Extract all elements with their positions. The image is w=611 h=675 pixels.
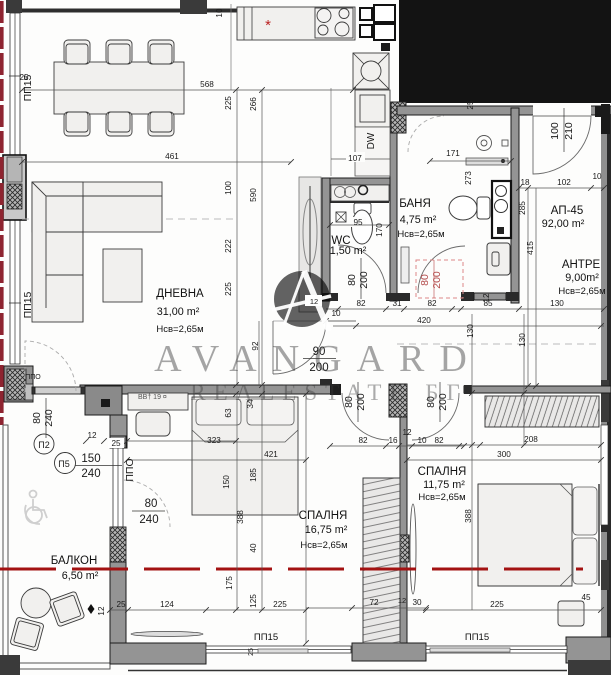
svg-text:12: 12 — [398, 596, 406, 605]
svg-text:16,75 m²: 16,75 m² — [305, 524, 348, 536]
svg-text:150: 150 — [222, 475, 231, 489]
svg-text:225: 225 — [224, 282, 233, 296]
svg-text:10: 10 — [592, 172, 602, 181]
svg-text:125: 125 — [249, 594, 258, 608]
svg-text:ПП15: ПП15 — [22, 74, 34, 101]
svg-text:DW: DW — [366, 132, 377, 149]
svg-text:175: 175 — [225, 576, 234, 590]
svg-text:12: 12 — [310, 297, 318, 306]
svg-text:461: 461 — [165, 152, 179, 161]
svg-text:415: 415 — [526, 241, 535, 255]
svg-text:225: 225 — [273, 600, 287, 609]
svg-text:92,00 m²: 92,00 m² — [542, 218, 585, 230]
svg-text:124: 124 — [160, 600, 174, 609]
svg-text:REALESTATE БГ: REALESTATE БГ — [190, 380, 468, 405]
svg-text:240: 240 — [139, 514, 158, 526]
svg-text:200: 200 — [358, 271, 370, 289]
svg-text:18: 18 — [520, 178, 530, 187]
svg-text:СПАЛНЯ: СПАЛНЯ — [418, 466, 467, 478]
svg-text:30: 30 — [412, 598, 422, 607]
svg-text:82: 82 — [434, 436, 444, 445]
svg-text:СПАЛНЯ: СПАЛНЯ — [299, 510, 348, 522]
svg-text:421: 421 — [264, 450, 278, 459]
svg-text:225: 225 — [490, 600, 504, 609]
svg-text:210: 210 — [563, 122, 575, 140]
svg-text:АП-45: АП-45 — [551, 205, 583, 217]
svg-text:12: 12 — [87, 431, 97, 440]
svg-text:107: 107 — [348, 154, 362, 163]
svg-text:40: 40 — [249, 543, 258, 553]
svg-text:170: 170 — [375, 223, 384, 237]
svg-text:БАНЯ: БАНЯ — [399, 198, 431, 210]
svg-text:63: 63 — [224, 408, 233, 418]
svg-text:82: 82 — [358, 436, 368, 445]
svg-text:1,50 m²: 1,50 m² — [330, 245, 367, 257]
svg-text:10: 10 — [417, 436, 427, 445]
svg-text:130: 130 — [550, 299, 564, 308]
svg-text:AVANGARD: AVANGARD — [154, 338, 482, 380]
svg-text:388: 388 — [464, 509, 473, 523]
svg-text:240: 240 — [81, 468, 100, 480]
svg-text:25: 25 — [466, 100, 475, 110]
svg-text:150: 150 — [81, 453, 100, 465]
svg-text:10: 10 — [331, 309, 341, 318]
svg-text:266: 266 — [249, 97, 258, 111]
svg-text:ПП15: ПП15 — [254, 632, 278, 643]
svg-text:25: 25 — [116, 600, 126, 609]
svg-text:130: 130 — [518, 333, 527, 347]
svg-text:80: 80 — [419, 274, 431, 286]
svg-text:6,50 m²: 6,50 m² — [62, 570, 99, 582]
svg-text:208: 208 — [524, 435, 538, 444]
svg-text:ППО: ППО — [124, 458, 136, 481]
svg-text:ППО: ППО — [25, 374, 41, 381]
svg-text:102: 102 — [557, 178, 571, 187]
svg-text:225: 225 — [224, 96, 233, 110]
svg-text:31: 31 — [392, 299, 402, 308]
svg-text:АНТРЕ: АНТРЕ — [562, 259, 601, 271]
svg-text:25: 25 — [248, 648, 255, 656]
svg-text:П2: П2 — [38, 440, 49, 450]
svg-text:80: 80 — [346, 274, 358, 286]
svg-text:ПП15: ПП15 — [22, 291, 34, 318]
svg-text:300: 300 — [497, 450, 511, 459]
svg-text:100: 100 — [549, 122, 561, 140]
svg-text:11,75 m²: 11,75 m² — [423, 479, 465, 491]
svg-text:П5: П5 — [58, 459, 69, 469]
svg-text:9,00m²: 9,00m² — [565, 272, 599, 284]
svg-text:Нсв=2,65м: Нсв=2,65м — [397, 229, 444, 240]
svg-text:185: 185 — [249, 468, 258, 482]
svg-text:388: 388 — [236, 510, 245, 524]
svg-text:72: 72 — [369, 598, 379, 607]
svg-text:ДНЕВНА: ДНЕВНА — [156, 288, 204, 300]
svg-text:16: 16 — [388, 436, 398, 445]
svg-text:4,75 m²: 4,75 m² — [400, 214, 437, 226]
svg-text:273: 273 — [464, 171, 473, 185]
svg-text:Нсв=2,65м: Нсв=2,65м — [558, 286, 605, 297]
svg-text:82: 82 — [427, 299, 437, 308]
svg-text:95: 95 — [353, 218, 363, 227]
svg-text:240: 240 — [43, 409, 55, 427]
svg-text:200: 200 — [431, 271, 443, 289]
svg-text:80: 80 — [31, 412, 43, 424]
svg-text:285: 285 — [518, 201, 527, 215]
svg-text:*: * — [265, 17, 271, 34]
svg-text:80: 80 — [145, 498, 158, 510]
svg-text:Нсв=2,65м: Нсв=2,65м — [156, 324, 203, 335]
svg-text:420: 420 — [417, 316, 431, 325]
svg-text:12: 12 — [97, 606, 106, 616]
svg-text:12: 12 — [482, 293, 491, 303]
svg-text:590: 590 — [249, 188, 258, 202]
svg-text:Нсв=2,65м: Нсв=2,65м — [300, 540, 347, 551]
svg-text:10: 10 — [215, 8, 224, 18]
svg-text:323: 323 — [207, 436, 221, 445]
svg-text:222: 222 — [224, 239, 233, 253]
svg-text:82: 82 — [356, 299, 366, 308]
svg-text:130: 130 — [466, 324, 475, 338]
svg-text:БАЛКОН: БАЛКОН — [51, 555, 98, 567]
svg-text:100: 100 — [224, 181, 233, 195]
svg-text:171: 171 — [446, 149, 460, 158]
svg-text:Нсв=2,65м: Нсв=2,65м — [418, 492, 465, 503]
svg-text:568: 568 — [200, 80, 214, 89]
svg-text:45: 45 — [581, 593, 591, 602]
svg-text:ВВ† 19 ¤: ВВ† 19 ¤ — [138, 394, 167, 401]
svg-text:12: 12 — [402, 428, 412, 437]
svg-text:ПП15: ПП15 — [465, 632, 489, 643]
svg-text:25: 25 — [111, 439, 121, 448]
svg-text:31,00 m²: 31,00 m² — [157, 306, 200, 318]
